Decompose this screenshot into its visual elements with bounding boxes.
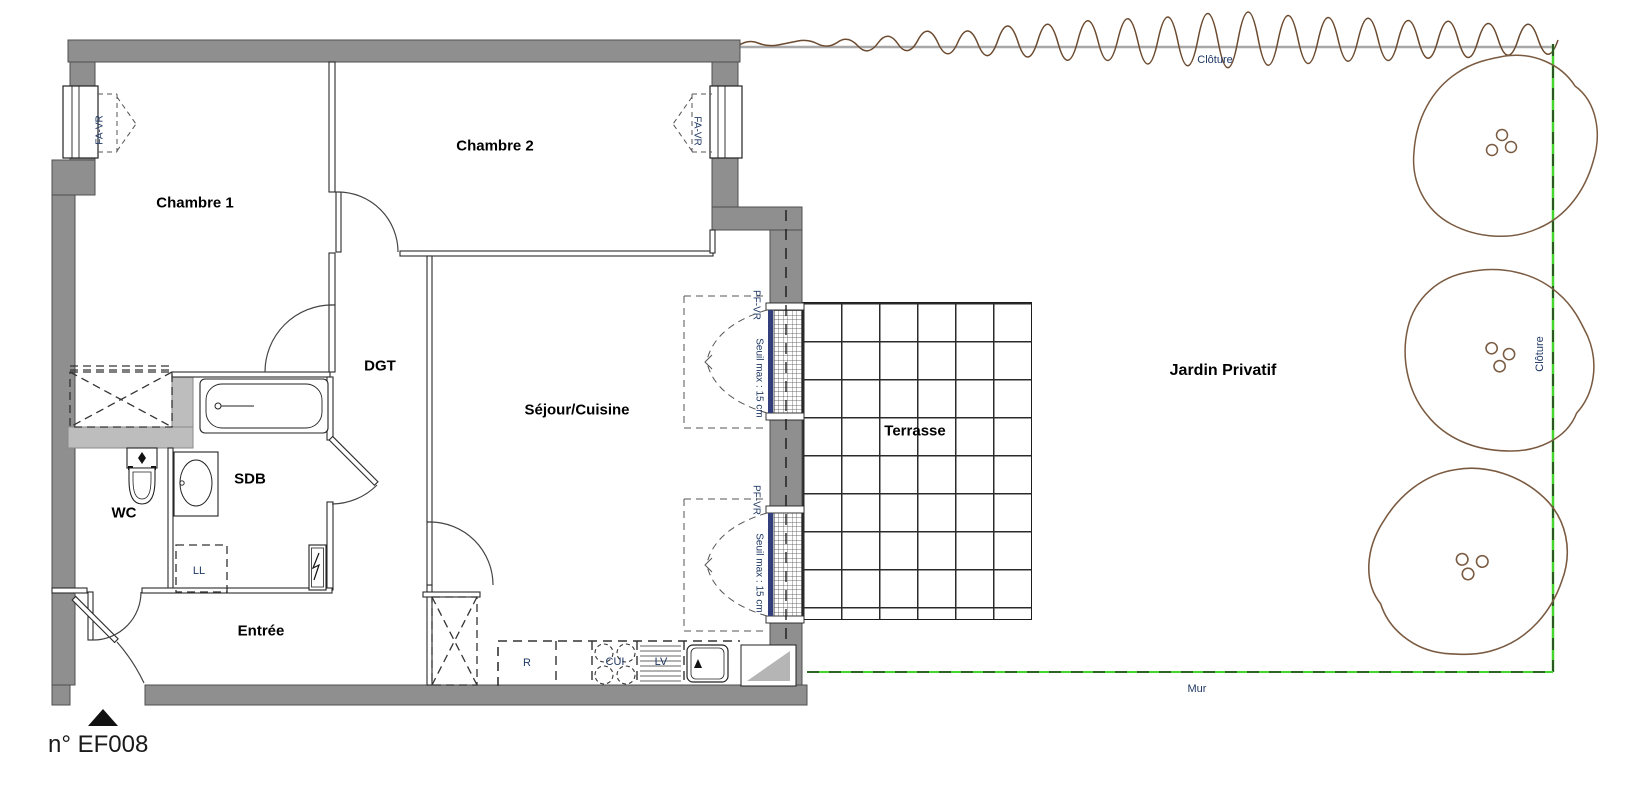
- room-label-sejour-cuisine: Séjour/Cuisine: [524, 402, 629, 419]
- floor-plan: Chambre 1 Chambre 2 DGT SDB WC Entrée Sé…: [0, 0, 1652, 786]
- north-arrow-icon: [88, 709, 118, 726]
- window-label-seuil-2: Seuil max : 15 cm: [754, 533, 765, 612]
- room-label-chambre1: Chambre 1: [156, 195, 234, 212]
- room-label-dgt: DGT: [364, 358, 396, 375]
- appliance-label-dishwasher: LV: [655, 656, 668, 668]
- plan-drawing: [0, 0, 1652, 786]
- window-label-pf-vr-2: PF-VR: [751, 485, 762, 515]
- room-label-chambre2: Chambre 2: [456, 138, 534, 155]
- tree-icon: [1350, 445, 1585, 679]
- tree-icon: [1386, 246, 1613, 475]
- appliance-label-fridge: R: [523, 657, 531, 669]
- bathtub: [200, 379, 328, 433]
- area-label-terrasse: Terrasse: [884, 423, 945, 440]
- area-label-jardin-privatif: Jardin Privatif: [1170, 362, 1277, 380]
- closet-chambre1: [70, 366, 172, 427]
- kitchen-sink: [687, 645, 728, 682]
- boundary-label-cloture-top: Clôture: [1197, 54, 1232, 66]
- room-label-sdb: SDB: [234, 471, 266, 488]
- garden-trees: [1350, 55, 1613, 679]
- fence-top-hedge: [738, 12, 1558, 68]
- plan-number: n° EF008: [48, 731, 148, 759]
- boundary-label-mur: Mur: [1188, 683, 1207, 695]
- window-label-fa-vr-right: FA-VR: [692, 116, 703, 145]
- window-fa-vr-right: [673, 86, 742, 158]
- room-label-entree: Entrée: [238, 623, 285, 640]
- window-label-pf-vr-1: PF-VR: [751, 290, 762, 320]
- closet-entree: [432, 597, 477, 685]
- window-label-fa-vr-left: FA-VR: [95, 115, 106, 144]
- toilet: [127, 448, 157, 504]
- appliance-label-washer: LL: [193, 565, 205, 577]
- room-label-wc: WC: [112, 505, 137, 522]
- tree-icon: [1414, 55, 1598, 236]
- appliance-label-cooktop: CUI: [606, 656, 625, 668]
- washbasin: [174, 452, 218, 516]
- duct-walls: [68, 377, 193, 448]
- corner-step: [741, 645, 796, 686]
- window-label-seuil-1: Seuil max : 15 cm: [754, 338, 765, 417]
- electrical-panel: [309, 545, 326, 590]
- boundary-label-cloture-right: Clôture: [1534, 336, 1546, 371]
